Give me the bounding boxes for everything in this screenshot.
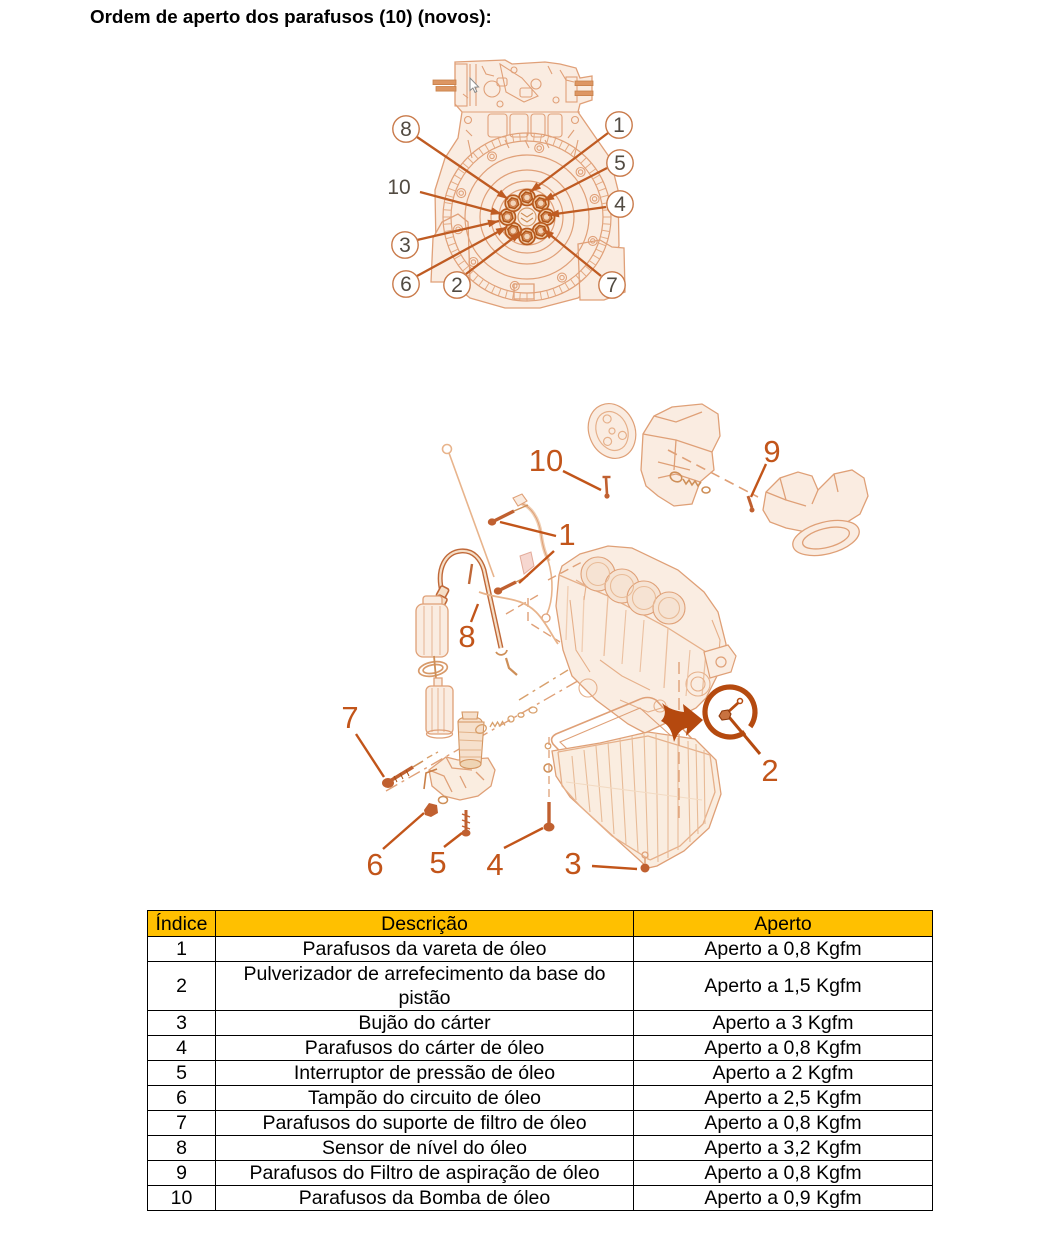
svg-text:2: 2 xyxy=(451,274,463,297)
svg-text:8: 8 xyxy=(458,619,475,654)
svg-text:4: 4 xyxy=(614,193,626,216)
svg-text:6: 6 xyxy=(400,273,412,296)
svg-text:1: 1 xyxy=(558,517,575,552)
svg-text:1: 1 xyxy=(613,114,625,137)
svg-text:2: 2 xyxy=(761,753,778,788)
svg-text:6: 6 xyxy=(366,847,383,882)
svg-text:10: 10 xyxy=(529,443,563,478)
svg-text:7: 7 xyxy=(341,700,358,735)
svg-text:4: 4 xyxy=(486,847,503,882)
svg-text:5: 5 xyxy=(429,845,446,880)
svg-text:3: 3 xyxy=(564,846,581,881)
svg-text:8: 8 xyxy=(400,118,412,141)
svg-text:3: 3 xyxy=(399,234,411,257)
svg-text:10: 10 xyxy=(387,176,410,199)
svg-text:5: 5 xyxy=(614,152,626,175)
svg-text:7: 7 xyxy=(606,274,618,297)
svg-text:9: 9 xyxy=(763,434,780,469)
